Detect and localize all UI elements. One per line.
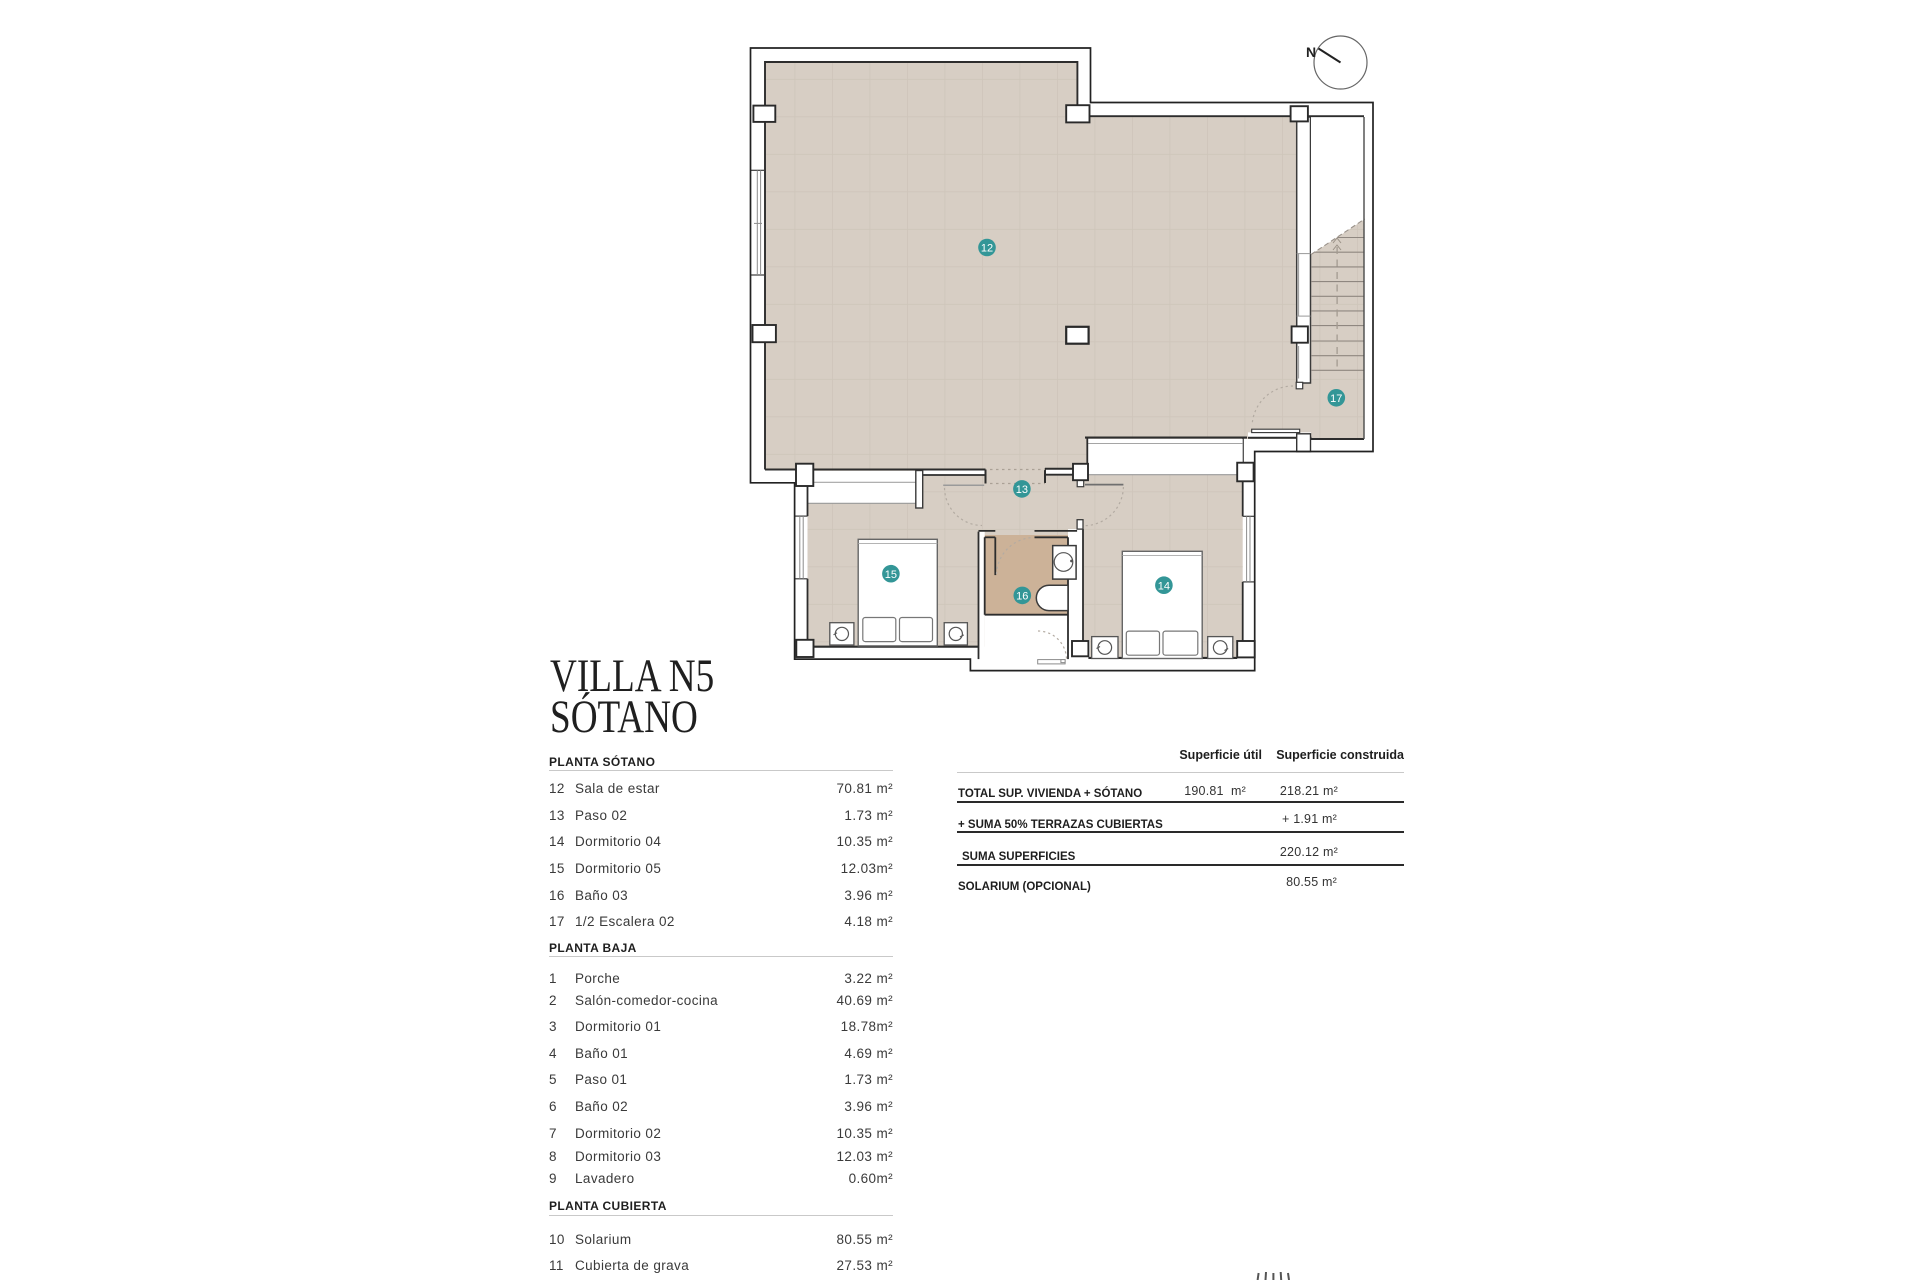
svg-text:13: 13	[1016, 484, 1028, 496]
svg-text:15: 15	[885, 569, 897, 581]
svg-text:16: 16	[1016, 591, 1028, 603]
svg-text:14: 14	[1158, 580, 1170, 592]
svg-text:N: N	[1306, 44, 1316, 60]
svg-text:12: 12	[981, 243, 993, 255]
svg-text:17: 17	[1330, 393, 1342, 405]
